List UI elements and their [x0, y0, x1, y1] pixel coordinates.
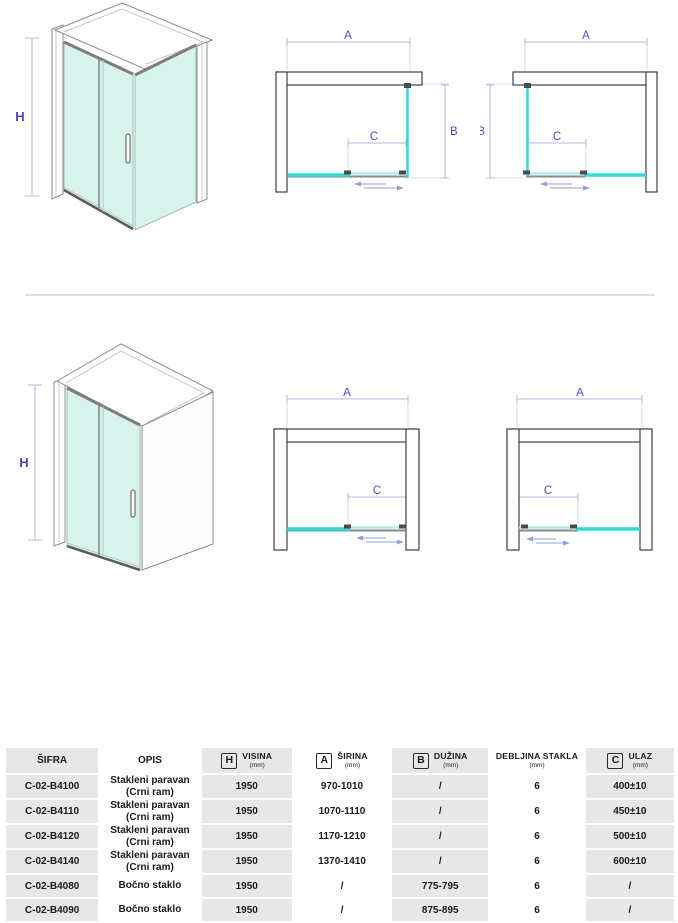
plan-view-corner-right: A B C [480, 30, 678, 200]
cell-debljina: 6 [490, 825, 583, 848]
cell-sirina: 1070-1110 [294, 800, 390, 823]
dimension-label-c: C [544, 485, 552, 497]
table-row: C-02-B4120 Stakleni paravan (Crni ram) 1… [6, 825, 674, 848]
section-divider [25, 294, 655, 296]
header-visina-title: VISINA [242, 752, 272, 761]
a-dimension: A [525, 30, 647, 46]
header-duzina-title: DUŽINA [434, 752, 468, 761]
extension-lines [517, 403, 642, 527]
cell-debljina: 6 [490, 775, 583, 798]
dimension-label-b: B [450, 126, 458, 138]
iso-view-corner-shower: H [0, 0, 240, 250]
iso-view-niche-shower: H [0, 340, 240, 580]
letter-box-c: C [607, 753, 623, 769]
cell-ulaz: 450±10 [586, 800, 674, 823]
dimension-label-c: C [373, 485, 381, 497]
cell-sirina: 970-1010 [294, 775, 390, 798]
door-handle [131, 490, 135, 517]
header-debljina-unit: (mm) [529, 763, 544, 770]
a-dimension: A [287, 388, 408, 403]
opis-line2: (Crni ram) [100, 862, 199, 874]
slide-direction-arrow-icon [356, 536, 404, 545]
opis-line1: Stakleni paravan [100, 850, 199, 862]
cell-ulaz: / [586, 875, 674, 897]
cell-sifra: C-02-B4090 [6, 899, 98, 921]
side-glass-panel [135, 45, 196, 230]
cell-duzina: / [392, 850, 488, 873]
hatched-wall-top [274, 429, 419, 442]
h-dimension: H [19, 385, 42, 540]
opis-line2: (Crni ram) [100, 812, 199, 824]
slide-direction-arrow-icon [526, 537, 570, 546]
extension-lines [287, 403, 408, 527]
cell-sifra: C-02-B4140 [6, 850, 98, 873]
c-dimension: C [528, 131, 586, 147]
right-wall-strip [197, 42, 207, 203]
cell-visina: 1950 [202, 775, 292, 798]
letter-box-h: H [221, 753, 237, 769]
header-visina: H VISINA (mm) [202, 748, 292, 773]
header-sirina-unit: (mm) [345, 763, 360, 770]
table-row: C-02-B4080 Bočno staklo 1950 / 775-795 6… [6, 875, 674, 897]
cell-sifra: C-02-B4110 [6, 800, 98, 823]
letter-box-a: A [316, 753, 332, 769]
cell-opis: Stakleni paravan (Crni ram) [100, 775, 199, 798]
left-wall-strip [52, 25, 63, 199]
header-sirina-title: ŠIRINA [337, 752, 367, 761]
plan-view-corner-left: A B C [260, 30, 470, 200]
a-dimension: A [517, 388, 642, 403]
hatched-wall-top [513, 72, 657, 85]
cell-sirina: 1170-1210 [294, 825, 390, 848]
cell-sirina: / [294, 875, 390, 897]
cell-opis: Stakleni paravan (Crni ram) [100, 800, 199, 823]
side-glass-line [524, 83, 531, 178]
plan-view-niche-right: A C [495, 388, 678, 553]
cell-sirina: 1370-1410 [294, 850, 390, 873]
dimension-label-a: A [576, 388, 584, 399]
cell-opis: Stakleni paravan (Crni ram) [100, 850, 199, 873]
header-sirina: A ŠIRINA (mm) [294, 748, 390, 773]
cell-visina: 1950 [202, 825, 292, 848]
cell-sifra: C-02-B4100 [6, 775, 98, 798]
header-ulaz-unit: (mm) [633, 763, 648, 770]
cell-opis: Stakleni paravan (Crni ram) [100, 825, 199, 848]
header-sifra: ŠIFRA [6, 748, 98, 773]
header-duzina: B DUŽINA (mm) [392, 748, 488, 773]
sliding-door-track [519, 525, 640, 531]
cell-duzina: / [392, 825, 488, 848]
cell-duzina: / [392, 800, 488, 823]
cell-sifra: C-02-B4120 [6, 825, 98, 848]
a-dimension: A [287, 30, 410, 46]
opis-line1: Stakleni paravan [100, 825, 199, 837]
table-row: C-02-B4100 Stakleni paravan (Crni ram) 1… [6, 775, 674, 798]
opis-line1: Bočno staklo [100, 904, 199, 916]
header-ulaz: C ULAZ (mm) [586, 748, 674, 773]
sliding-door-track [288, 171, 407, 177]
cell-ulaz: / [586, 899, 674, 921]
table-row: C-02-B4110 Stakleni paravan (Crni ram) 1… [6, 800, 674, 823]
header-ulaz-title: ULAZ [628, 752, 652, 761]
cell-ulaz: 600±10 [586, 850, 674, 873]
header-debljina: DEBLJINA STAKLA (mm) [490, 748, 583, 773]
front-glass-door [64, 42, 133, 229]
cell-sifra: C-02-B4080 [6, 875, 98, 897]
letter-box-b: B [413, 753, 429, 769]
dimension-label-c: C [553, 131, 561, 143]
cell-ulaz: 500±10 [586, 825, 674, 848]
table-header-row: ŠIFRA OPIS H VISINA (mm) A ŠIRINA (mm) [6, 748, 674, 773]
cell-visina: 1950 [202, 800, 292, 823]
sliding-door-track [287, 525, 406, 531]
cell-visina: 1950 [202, 899, 292, 921]
cell-duzina: 775-795 [392, 875, 488, 897]
hatched-wall-right [646, 72, 657, 192]
cell-visina: 1950 [202, 875, 292, 897]
c-dimension: C [519, 485, 578, 501]
hatched-wall-right [640, 429, 652, 550]
cell-debljina: 6 [490, 875, 583, 897]
cell-ulaz: 400±10 [586, 775, 674, 798]
b-dimension: B [441, 85, 458, 178]
cell-debljina: 6 [490, 899, 583, 921]
extension-lines [287, 46, 449, 178]
opis-line2: (Crni ram) [100, 787, 199, 799]
b-dimension: B [480, 85, 494, 178]
hatched-wall-left [276, 72, 287, 192]
side-glass-line [404, 83, 411, 178]
dimension-label-c: C [370, 131, 378, 143]
slide-direction-arrow-icon [540, 182, 590, 191]
header-duzina-unit: (mm) [443, 763, 458, 770]
dimension-label-h: H [15, 109, 24, 124]
c-dimension: C [348, 485, 406, 501]
plan-view-niche-left: A C [265, 388, 435, 553]
hatched-wall-top [507, 429, 652, 442]
cell-sirina: / [294, 899, 390, 921]
c-dimension: C [348, 131, 406, 147]
cell-opis: Bočno staklo [100, 899, 199, 921]
cell-duzina: 875-895 [392, 899, 488, 921]
hatched-wall-left [274, 429, 287, 550]
cell-debljina: 6 [490, 800, 583, 823]
opis-line2: (Crni ram) [100, 837, 199, 849]
h-dimension: H [15, 38, 39, 196]
hatched-wall-left [507, 429, 519, 550]
header-opis: OPIS [100, 748, 199, 773]
dimension-label-a: A [343, 388, 351, 399]
hatched-wall-top [277, 72, 422, 85]
left-wall-strip [54, 378, 65, 546]
dimension-label-h: H [19, 455, 28, 470]
dimension-label-a: A [344, 30, 352, 42]
table-row: C-02-B4090 Bočno staklo 1950 / 875-895 6… [6, 899, 674, 921]
dimension-label-b: B [480, 126, 485, 138]
cell-opis: Bočno staklo [100, 875, 199, 897]
cell-duzina: / [392, 775, 488, 798]
opis-line1: Stakleni paravan [100, 775, 199, 787]
cell-visina: 1950 [202, 850, 292, 873]
hatched-wall-right [406, 429, 419, 550]
dimension-label-a: A [582, 30, 590, 42]
opis-line1: Stakleni paravan [100, 800, 199, 812]
extension-lines [486, 46, 647, 178]
door-handle [126, 134, 130, 163]
opis-line1: Bočno staklo [100, 880, 199, 892]
table-row: C-02-B4140 Stakleni paravan (Crni ram) 1… [6, 850, 674, 873]
header-debljina-title: DEBLJINA STAKLA [496, 752, 578, 761]
slide-direction-arrow-icon [354, 182, 404, 191]
header-visina-unit: (mm) [250, 763, 265, 770]
specification-table: ŠIFRA OPIS H VISINA (mm) A ŠIRINA (mm) [4, 746, 676, 923]
sliding-door-track [523, 171, 646, 177]
cell-debljina: 6 [490, 850, 583, 873]
